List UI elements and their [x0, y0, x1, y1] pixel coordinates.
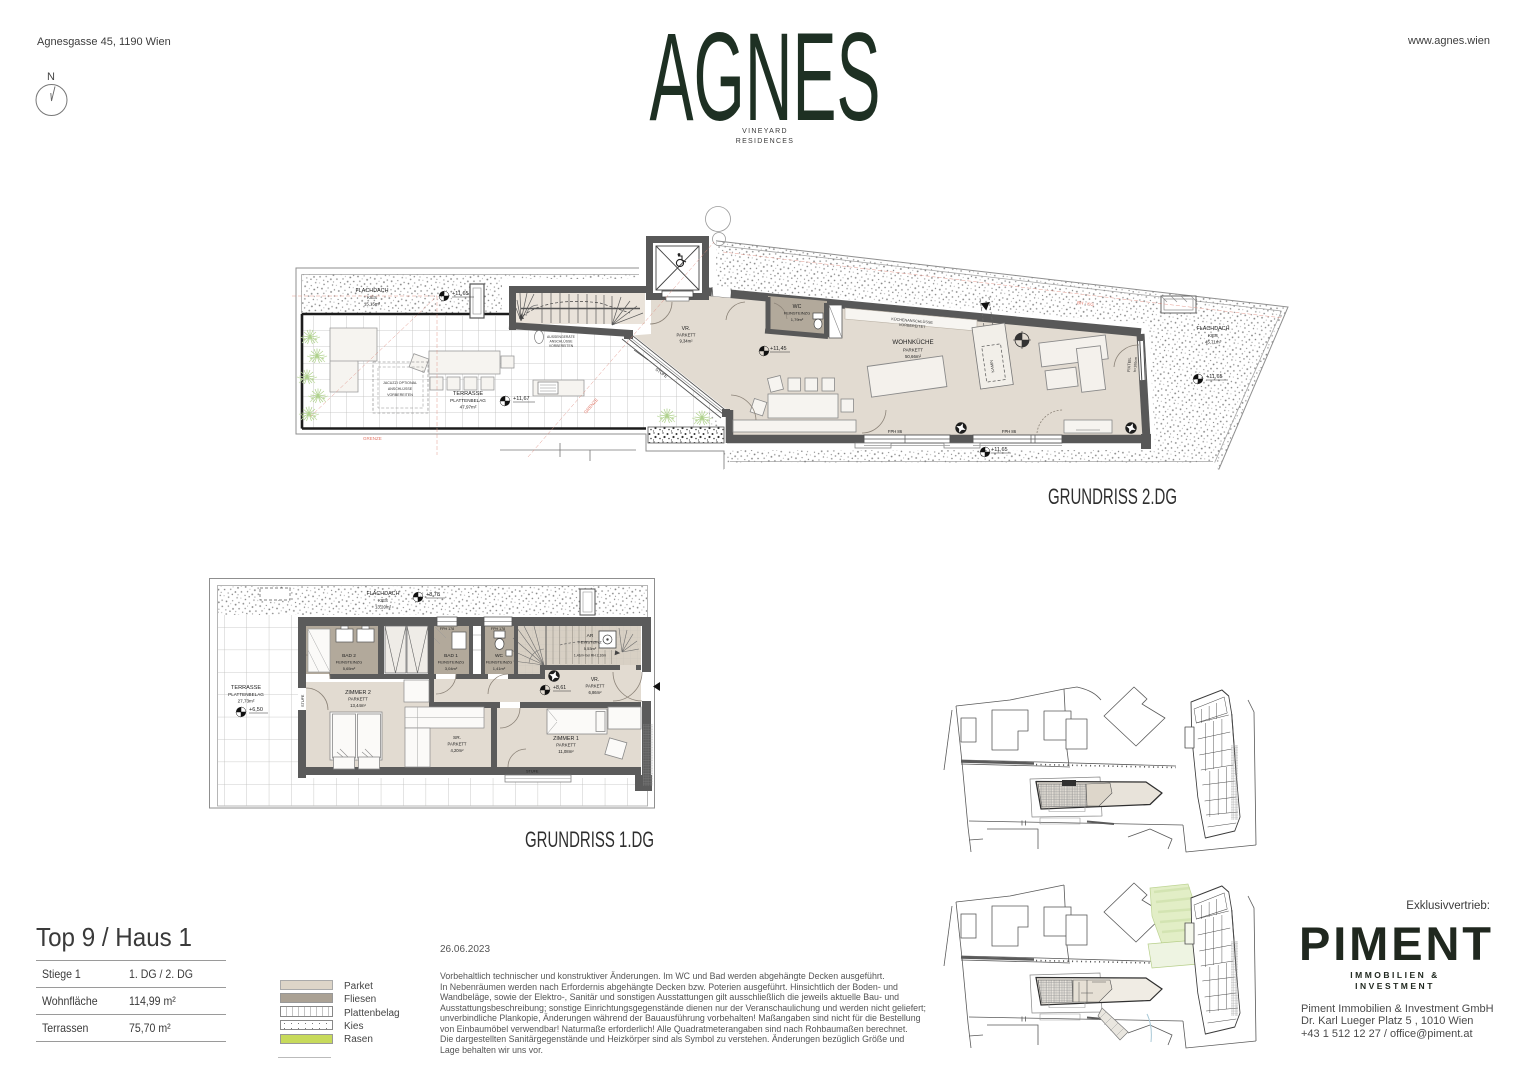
svg-text:TERRASSE: TERRASSE — [231, 685, 261, 691]
svg-text:PARKETT: PARKETT — [447, 742, 466, 747]
svg-text:15,15m²: 15,15m² — [364, 302, 381, 307]
svg-text:FEINSTEINZG: FEINSTEINZG — [784, 311, 810, 316]
svg-text:13,20m²: 13,20m² — [375, 605, 392, 610]
svg-text:KIES: KIES — [367, 295, 377, 300]
svg-text:STUFE: STUFE — [301, 694, 305, 707]
svg-text:FEINSTEINZG: FEINSTEINZG — [336, 660, 362, 665]
svg-text:VR.: VR. — [591, 677, 599, 683]
svg-text:1,41m²: 1,41m² — [493, 666, 506, 671]
svg-text:JACUZZI OPTIONAL: JACUZZI OPTIONAL — [383, 381, 417, 385]
svg-text:ZIMMER 2: ZIMMER 2 — [345, 690, 371, 696]
svg-text:BAD 2: BAD 2 — [342, 653, 356, 659]
svg-text:27,73m²: 27,73m² — [238, 699, 255, 704]
svg-text:+11,65: +11,65 — [991, 447, 1008, 453]
svg-text:9,34m²: 9,34m² — [679, 339, 693, 344]
svg-text:FLACHDACH: FLACHDACH — [356, 288, 389, 294]
svg-text:ZIMMER 1: ZIMMER 1 — [553, 736, 579, 742]
svg-text:WC: WC — [495, 653, 504, 659]
svg-text:VORBEREITEN: VORBEREITEN — [387, 393, 413, 397]
svg-text:FEINSTEINZ: FEINSTEINZ — [578, 640, 602, 645]
svg-text:GRENZE: GRENZE — [363, 436, 382, 441]
svg-text:WOHNKÜCHE: WOHNKÜCHE — [892, 339, 933, 346]
svg-text:PARKETT: PARKETT — [348, 697, 368, 702]
svg-text:PARKETT: PARKETT — [585, 684, 604, 689]
svg-text:1,79m²: 1,79m² — [791, 317, 804, 322]
svg-text:FPH 86: FPH 86 — [1002, 429, 1017, 434]
svg-text:FLACHDACH: FLACHDACH — [1197, 326, 1230, 332]
svg-text:BAD 1: BAD 1 — [444, 653, 458, 659]
svg-text:50,66m²: 50,66m² — [905, 354, 922, 359]
svg-text:PARKETT: PARKETT — [903, 348, 923, 353]
svg-text:13,44m²: 13,44m² — [350, 703, 366, 708]
svg-text:KIES: KIES — [378, 598, 388, 603]
svg-text:PIMENT: PIMENT — [1299, 917, 1491, 970]
svg-text:+11,65: +11,65 — [1206, 374, 1223, 380]
svg-text:GRUNDRISS 2.DG: GRUNDRISS 2.DG — [1048, 484, 1177, 509]
svg-text:47,97m²: 47,97m² — [460, 405, 477, 410]
svg-text:6,86m²: 6,86m² — [588, 690, 602, 695]
svg-text:5,53m²: 5,53m² — [584, 646, 597, 651]
svg-text:+8,61: +8,61 — [553, 685, 566, 691]
svg-text:+11,67: +11,67 — [513, 396, 530, 402]
svg-text:FPH 178: FPH 178 — [440, 627, 454, 631]
svg-text:SR.: SR. — [453, 735, 461, 741]
svg-text:STUFE: STUFE — [526, 770, 539, 774]
svg-text:45,71m²: 45,71m² — [1205, 340, 1222, 345]
svg-text:VR.: VR. — [682, 326, 691, 332]
svg-text:AUSSENGERÄTE: AUSSENGERÄTE — [547, 335, 576, 339]
svg-text:WC: WC — [793, 304, 802, 310]
svg-text:FEINSTEINZG: FEINSTEINZG — [438, 660, 464, 665]
svg-text:5,65m²: 5,65m² — [343, 666, 356, 671]
svg-text:FEINSTEINZG: FEINSTEINZG — [486, 660, 512, 665]
svg-text:+6,50: +6,50 — [249, 707, 263, 713]
svg-text:VORBEREITEN: VORBEREITEN — [549, 344, 574, 348]
svg-text:FLACHDACH: FLACHDACH — [367, 591, 400, 597]
svg-text:ANSCHLÜSSE: ANSCHLÜSSE — [388, 387, 413, 391]
svg-text:KIES: KIES — [1208, 333, 1218, 338]
svg-text:PARKETT: PARKETT — [676, 333, 695, 338]
svg-text:3,04m²: 3,04m² — [445, 666, 458, 671]
svg-text:AR: AR — [587, 633, 594, 639]
svg-text:TERRASSE: TERRASSE — [453, 391, 483, 397]
svg-text:11,08m²: 11,08m² — [558, 749, 574, 754]
svg-text:PLATTENBELAG: PLATTENBELAG — [228, 692, 264, 697]
svg-text:+8,78: +8,78 — [426, 592, 440, 598]
svg-text:GRUNDRISS 1.DG: GRUNDRISS 1.DG — [525, 827, 654, 852]
svg-text:FPH 178: FPH 178 — [491, 627, 505, 631]
svg-text:1,41m² bei RH 2,10m: 1,41m² bei RH 2,10m — [574, 654, 606, 658]
svg-text:FPH 86: FPH 86 — [888, 429, 903, 434]
svg-text:+11,65: +11,65 — [452, 291, 469, 297]
svg-text:N: N — [47, 71, 55, 83]
svg-text:4,20m²: 4,20m² — [450, 748, 464, 753]
svg-text:AGNES: AGNES — [649, 9, 880, 148]
svg-text:ANSCHLÜSSE: ANSCHLÜSSE — [550, 340, 574, 344]
svg-text:PLATTENBELAG: PLATTENBELAG — [450, 398, 486, 403]
svg-text:PARKETT: PARKETT — [556, 743, 576, 748]
svg-text:+11,45: +11,45 — [770, 346, 787, 352]
